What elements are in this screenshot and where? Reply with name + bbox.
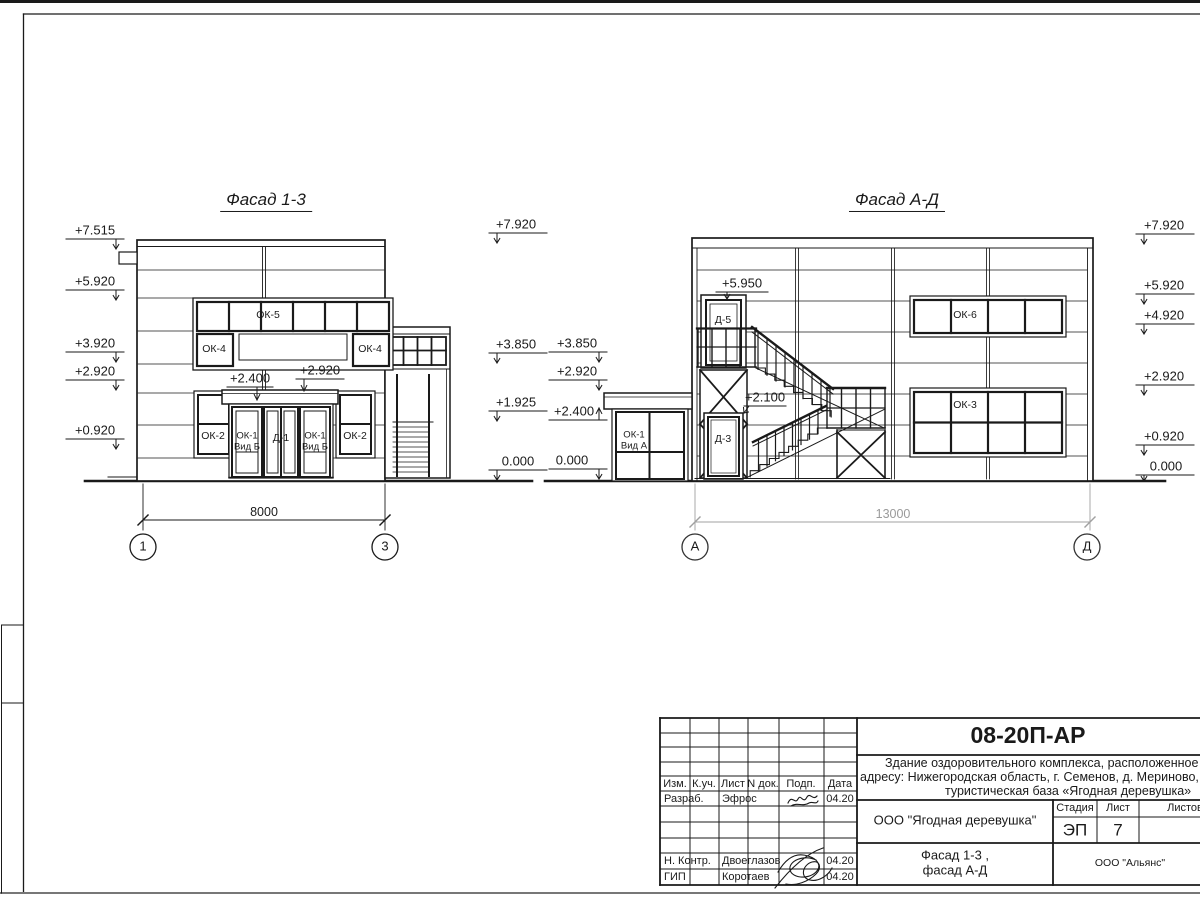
tb-date-nkontr: 04.20 [826,855,854,867]
facade-1-upper-windows [193,298,393,370]
elevation-mark: +1.925 [496,396,536,411]
drawing-sheet: Фасад 1-3 +7.515 +5.920 +3.920 +2.920 +0… [0,0,1200,900]
elevation-mark: +7.920 [496,218,536,233]
facade-2-title: Фасад А-Д [849,190,945,212]
window-label-ok2: ОК-2 [201,431,225,443]
window-label-ok1: ОК-1 Вид Б [302,431,328,452]
canopy-elevation-annotation: +2.400 [230,372,270,387]
tb-sheet-number: 7 [1113,820,1122,839]
door-label-d3: Д-3 [715,434,731,446]
facade-1-title: Фасад 1-3 [220,190,312,212]
elevation-mark: +3.850 [496,338,536,353]
door-label-d5: Д-5 [715,315,731,327]
tb-header-stage: Стадия [1056,802,1094,814]
door-mid-elevation-annotation: +2.100 [745,391,785,406]
elevation-mark: +0.920 [75,424,115,439]
axis-bubble-a: А [691,540,700,555]
tb-stage-value: ЭП [1063,820,1087,839]
tb-role-nkontr: Н. Контр. [664,855,711,867]
tb-date-razrab: 04.20 [826,793,854,805]
tb-header-podp: Подп. [786,778,815,790]
tb-name-gip: Коротаев [722,871,770,883]
elevation-mark: +5.920 [75,275,115,290]
customer-org: ООО "Ягодная деревушка" [874,814,1037,829]
elevation-mark: +7.920 [1144,219,1184,234]
tb-header-data: Дата [828,778,852,790]
window-label-ok3: ОК-3 [953,400,977,412]
window-label-ok2: ОК-2 [343,431,367,443]
elevation-mark: 0.000 [1150,460,1183,475]
tb-role-razrab: Разраб. [664,793,704,805]
tb-header-sheets: Листов [1167,802,1200,814]
tb-header-ndok: N док. [747,778,778,790]
facade-2-porch [604,393,692,481]
tb-name-razrab: Эфрос [722,793,757,805]
tb-header-list: Лист [721,778,745,790]
document-title-line3: туристическая база «Ягодная деревушка» [945,784,1191,798]
elevation-mark: +2.920 [75,365,115,380]
elevation-mark: +2.920 [557,365,597,380]
designer-company: ООО "Альянс" [1095,858,1165,870]
canopy-elevation-annotation: +2.920 [300,364,340,379]
elevation-mark: +4.920 [1144,309,1184,324]
tb-header-sheet: Лист [1106,802,1130,814]
tb-header-kuch: К.уч. [692,778,716,790]
dimension-8000: 8000 [250,505,278,519]
elevation-mark: +7.515 [75,224,115,239]
window-label-ok4: ОК-4 [358,344,382,356]
facade-1-stair-annex [385,327,450,478]
window-label-ok1-vid-a: ОК-1 Вид А [621,430,647,451]
facade-a-d-linework [545,238,1165,560]
sheet-content-title: Фасад 1-3 , фасад А-Д [921,848,989,877]
facade-1-3-linework [85,240,532,560]
window-label-ok4: ОК-4 [202,344,226,356]
signature-strokes [775,795,832,888]
elevation-mark: +3.920 [75,337,115,352]
elevation-mark: +2.920 [1144,370,1184,385]
window-label-ok6: ОК-6 [953,310,977,322]
axis-bubble-d: Д [1083,540,1092,555]
document-title-line2: адресу: Нижегородская область, г. Семено… [860,770,1199,784]
dimension-13000: 13000 [876,507,911,521]
tb-role-gip: ГИП [664,871,686,883]
document-code: 08-20П-АР [971,723,1086,749]
tb-date-gip: 04.20 [826,871,854,883]
door-label-d1: Д-1 [273,433,289,445]
axis-bubble-3: 3 [381,540,388,555]
elevation-mark: +3.850 [557,337,597,352]
tb-name-nkontr: Двоеглазов [722,855,780,867]
facade-1-dimension [130,484,398,560]
document-title-line1: Здание оздоровительного комплекса, распо… [885,756,1200,770]
elevation-mark: +5.920 [1144,279,1184,294]
window-label-ok1: ОК-1 Вид Б [234,431,260,452]
elevation-mark: 0.000 [556,454,589,469]
window-label-ok5: ОК-5 [256,310,280,322]
tb-header-izm: Изм. [663,778,687,790]
elevation-mark: +0.920 [1144,430,1184,445]
axis-bubble-1: 1 [139,540,146,555]
elevation-mark: 0.000 [502,455,535,470]
elevation-mark: +2.400 [554,405,594,420]
door-top-elevation-annotation: +5.950 [722,277,762,292]
